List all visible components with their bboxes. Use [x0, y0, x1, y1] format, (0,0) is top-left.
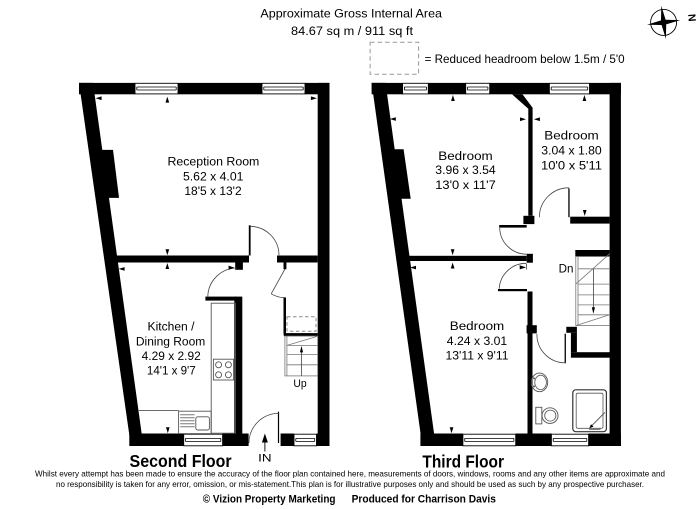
svg-text:Third Floor: Third Floor [422, 451, 504, 471]
svg-text:= Reduced headroom below 1.5m: = Reduced headroom below 1.5m / 5'0 [425, 53, 625, 66]
svg-text:14'1 x 9'7: 14'1 x 9'7 [147, 364, 196, 378]
svg-text:4.24 x 3.01: 4.24 x 3.01 [447, 334, 508, 348]
svg-text:Bedroom: Bedroom [450, 319, 505, 333]
svg-text:5.62 x 4.01: 5.62 x 4.01 [183, 169, 244, 183]
svg-text:Second Floor: Second Floor [130, 451, 232, 471]
svg-text:84.67 sq m / 911 sq ft: 84.67 sq m / 911 sq ft [291, 24, 414, 38]
svg-text:13'0 x 11'7: 13'0 x 11'7 [435, 178, 496, 192]
svg-text:© Vizion Property Marketing: © Vizion Property Marketing [203, 494, 336, 506]
svg-text:3.96 x 3.54: 3.96 x 3.54 [435, 163, 496, 177]
svg-text:Bedroom: Bedroom [438, 149, 493, 163]
svg-text:Produced for Charrison Davis: Produced for Charrison Davis [352, 494, 496, 506]
svg-text:Approximate Gross Internal Are: Approximate Gross Internal Area [260, 7, 442, 21]
svg-text:no responsibility is taken for: no responsibility is taken for any error… [56, 480, 644, 489]
svg-text:4.29 x 2.92: 4.29 x 2.92 [142, 349, 201, 363]
svg-text:IN: IN [258, 453, 271, 465]
svg-text:Up: Up [293, 378, 306, 390]
svg-text:10'0 x 5'11: 10'0 x 5'11 [541, 159, 602, 173]
svg-text:Dining Room: Dining Room [136, 334, 205, 348]
svg-text:N: N [685, 13, 698, 22]
svg-text:Kitchen /: Kitchen / [148, 320, 195, 334]
svg-text:3.04 x 1.80: 3.04 x 1.80 [541, 143, 602, 157]
svg-text:13'11 x 9'11: 13'11 x 9'11 [446, 348, 509, 362]
svg-text:Bedroom: Bedroom [544, 129, 599, 143]
svg-text:Reception Room: Reception Room [167, 154, 259, 168]
svg-text:Dn: Dn [559, 262, 574, 276]
svg-text:18'5 x 13'2: 18'5 x 13'2 [184, 184, 241, 198]
svg-text:Whilst every attempt has been: Whilst every attempt has been made to en… [35, 469, 665, 478]
